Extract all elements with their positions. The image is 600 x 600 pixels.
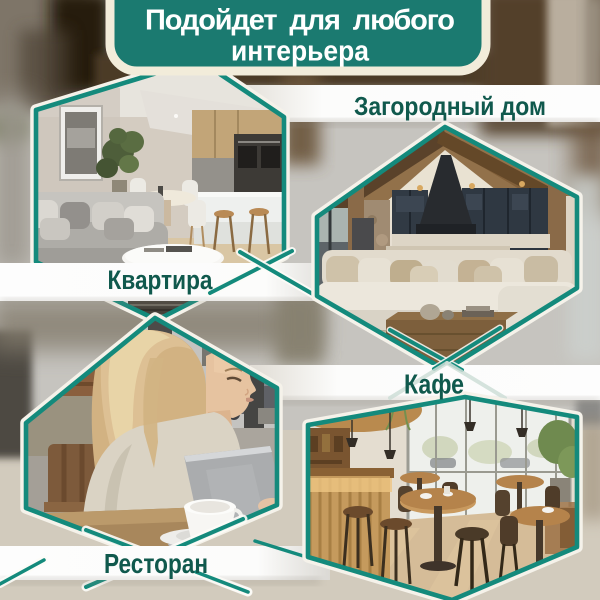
svg-text:Подойдет для любого: Подойдет для любого [145, 5, 455, 37]
svg-text:Кафе: Кафе [404, 369, 464, 400]
svg-text:Ресторан: Ресторан [104, 548, 208, 579]
svg-text:Квартира: Квартира [108, 265, 214, 295]
svg-text:интерьера: интерьера [231, 36, 370, 68]
svg-text:Загородный дом: Загородный дом [354, 91, 546, 121]
